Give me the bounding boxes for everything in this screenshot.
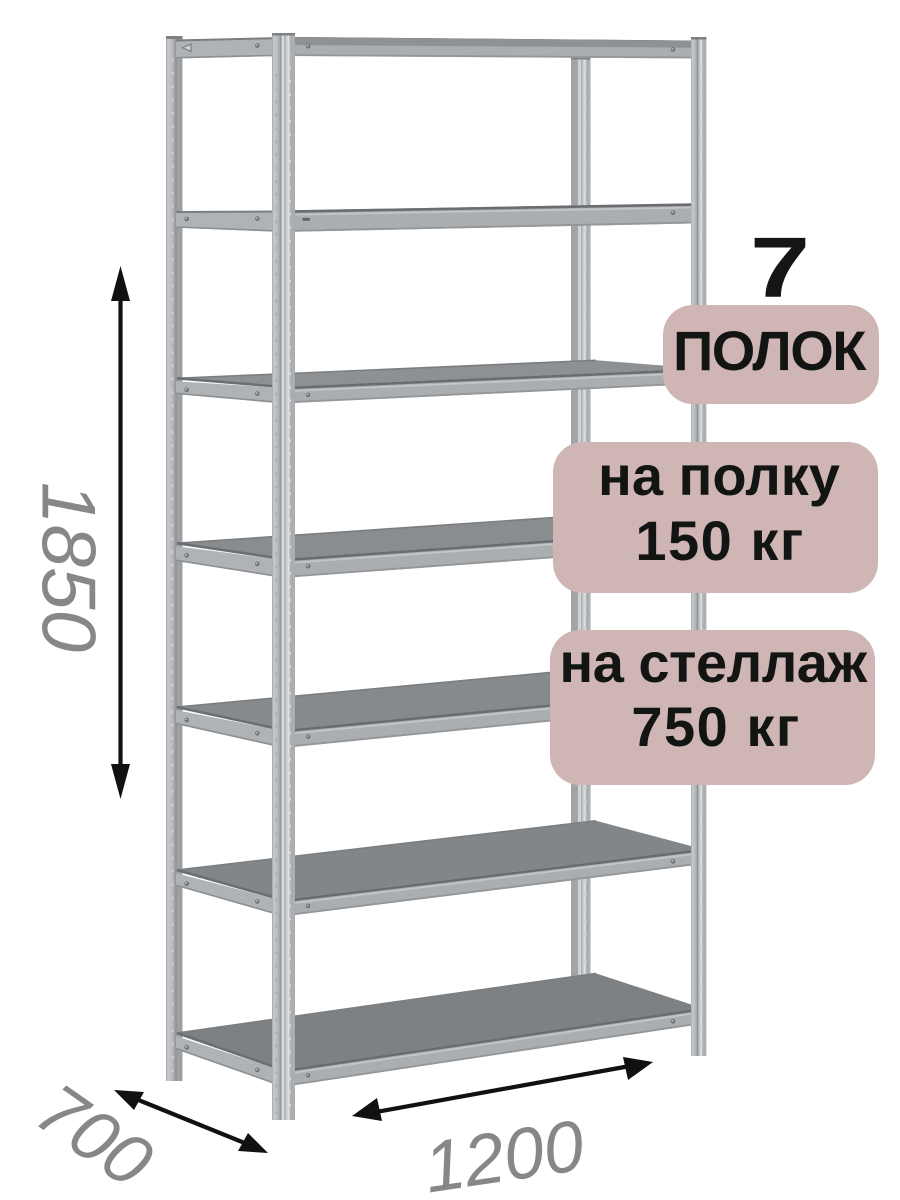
svg-text:150 кг: 150 кг [635,509,804,572]
svg-text:7: 7 [750,220,810,315]
svg-text:на полку: на полку [598,444,840,507]
svg-text:1200: 1200 [419,1106,589,1200]
svg-text:700: 700 [22,1069,166,1200]
svg-text:750 кг: 750 кг [631,695,800,758]
svg-text:на стеллаж: на стеллаж [559,631,868,694]
svg-text:ПОЛОК: ПОЛОК [673,319,867,382]
svg-text:1850: 1850 [26,482,111,652]
